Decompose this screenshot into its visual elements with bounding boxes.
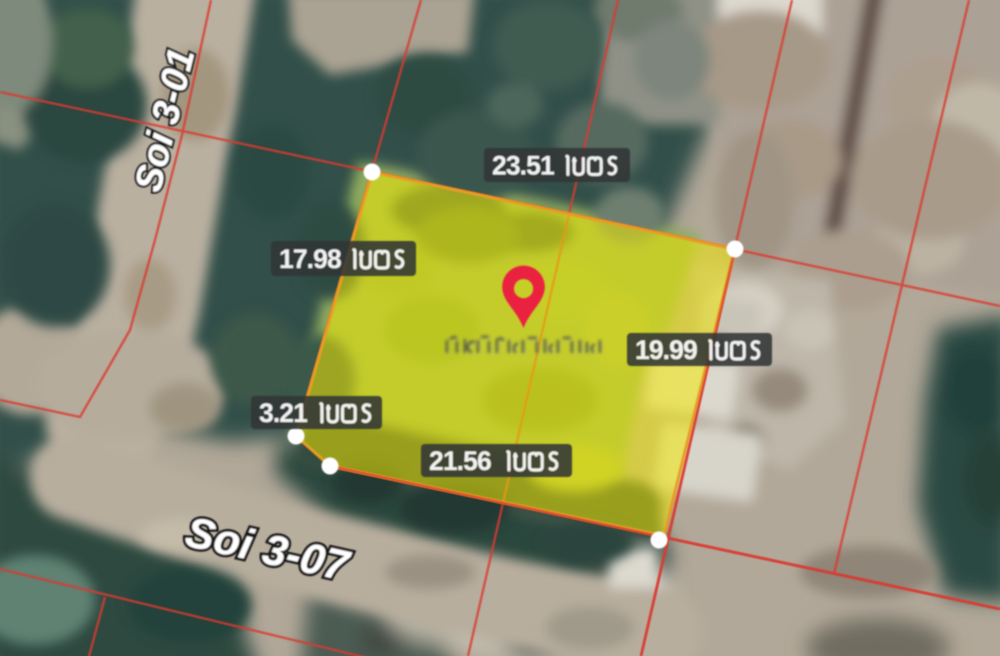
svg-text:17.98: 17.98 bbox=[279, 244, 341, 274]
svg-text:23.51: 23.51 bbox=[492, 151, 554, 181]
svg-text:3.21: 3.21 bbox=[259, 398, 307, 428]
svg-text:21.56: 21.56 bbox=[429, 446, 491, 476]
svg-text:19.99: 19.99 bbox=[635, 335, 697, 365]
